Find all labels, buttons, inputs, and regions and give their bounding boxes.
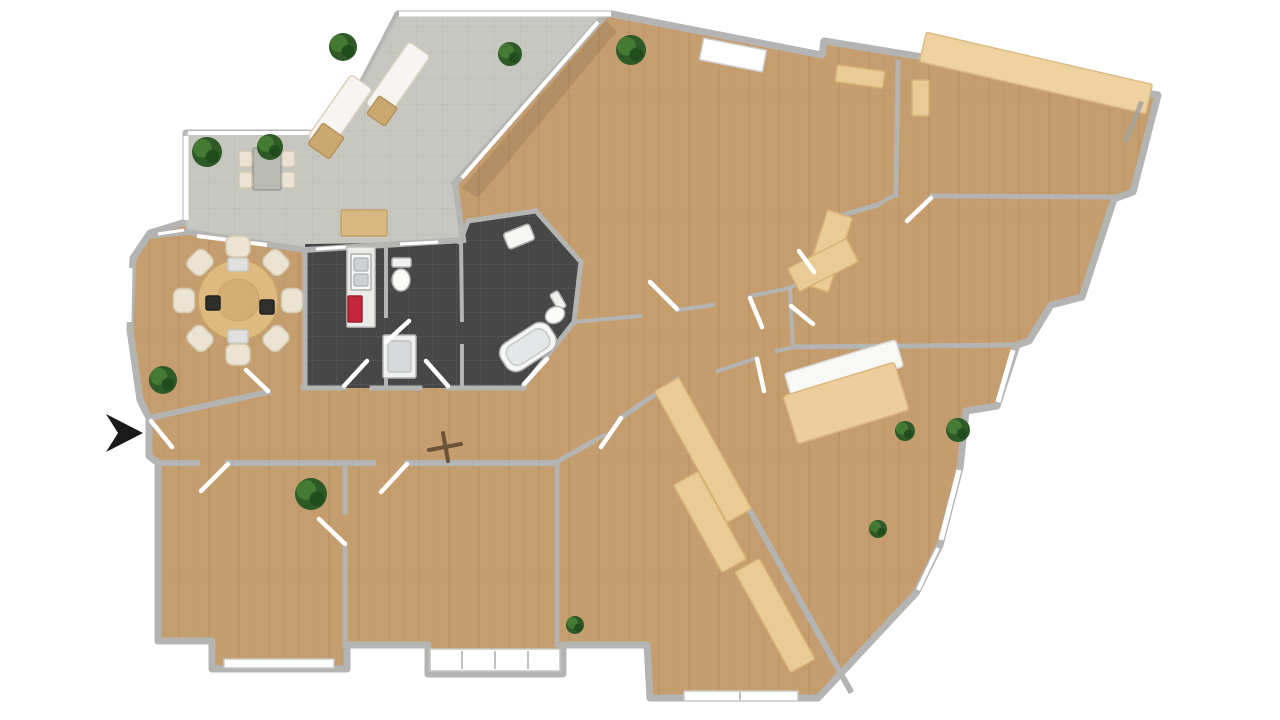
window-bath-top-2 bbox=[400, 242, 438, 244]
entrance-arrow-icon bbox=[106, 414, 143, 452]
shower-inner bbox=[388, 341, 411, 372]
wall-topright-room bbox=[932, 196, 1114, 197]
toilet-1-tank bbox=[392, 258, 411, 267]
terrace-chair-2 bbox=[239, 172, 252, 188]
plant-bedroom-right-2 bbox=[895, 421, 915, 441]
plant-bedroom-right-1 bbox=[946, 418, 970, 442]
cabinet-top-b bbox=[912, 80, 929, 116]
toilet-1-bowl bbox=[392, 269, 410, 291]
window-bath-top-1 bbox=[316, 247, 346, 249]
plant-living-corner-c bbox=[630, 48, 644, 62]
plant-bedroom-right-3-c bbox=[877, 528, 885, 536]
window-bay-left bbox=[224, 659, 334, 668]
plant-terrace-4 bbox=[498, 42, 522, 66]
plant-dining-c bbox=[162, 378, 175, 391]
dining-chair-1 bbox=[282, 289, 303, 313]
kitchen-sink-basin-2 bbox=[354, 274, 368, 286]
plant-terrace-4-c bbox=[509, 52, 520, 63]
terrace-chair-1 bbox=[239, 151, 252, 167]
plant-terrace-2 bbox=[257, 134, 283, 160]
dining-place-south bbox=[228, 330, 248, 343]
dining-dark-west bbox=[206, 296, 220, 310]
wall-bath-divider-a bbox=[461, 242, 462, 320]
wall-topright-c bbox=[896, 62, 898, 195]
dining-chair-5 bbox=[174, 289, 195, 313]
plant-room-bottom-left bbox=[295, 478, 327, 510]
kitchen-sink-basin-1 bbox=[354, 258, 368, 271]
plant-bedroom-right-3 bbox=[869, 520, 887, 538]
terrace-bench bbox=[341, 210, 387, 236]
building-outline bbox=[130, 14, 1158, 698]
plant-bedroom-center-c bbox=[574, 624, 582, 632]
plant-room-bottom-left-c bbox=[309, 492, 323, 506]
terrace-chair-3 bbox=[282, 151, 295, 167]
plant-terrace-3-c bbox=[342, 45, 355, 58]
window-dining-left bbox=[129, 268, 130, 322]
plant-bedroom-center bbox=[566, 616, 584, 634]
terrace-chair-4 bbox=[282, 172, 295, 188]
dining-dark-east bbox=[260, 300, 274, 314]
plant-terrace-2-c bbox=[269, 145, 281, 157]
dining-chair-3 bbox=[226, 344, 250, 365]
plant-terrace-3 bbox=[329, 33, 357, 61]
plant-terrace-1-c bbox=[206, 150, 220, 164]
dining-table-inner bbox=[217, 279, 259, 321]
wall-midright-room bbox=[795, 345, 1017, 347]
floor-plan-svg bbox=[0, 0, 1280, 720]
kitchen-stove bbox=[348, 296, 362, 322]
dining-place-north bbox=[228, 258, 248, 271]
floor-plan bbox=[0, 0, 1280, 720]
dining-chair-7 bbox=[226, 236, 250, 257]
plant-living-corner bbox=[616, 35, 646, 65]
plant-dining bbox=[149, 366, 177, 394]
plant-bedroom-right-2-c bbox=[904, 430, 913, 439]
plant-terrace-1 bbox=[192, 137, 222, 167]
plant-bedroom-right-1-c bbox=[957, 428, 968, 439]
